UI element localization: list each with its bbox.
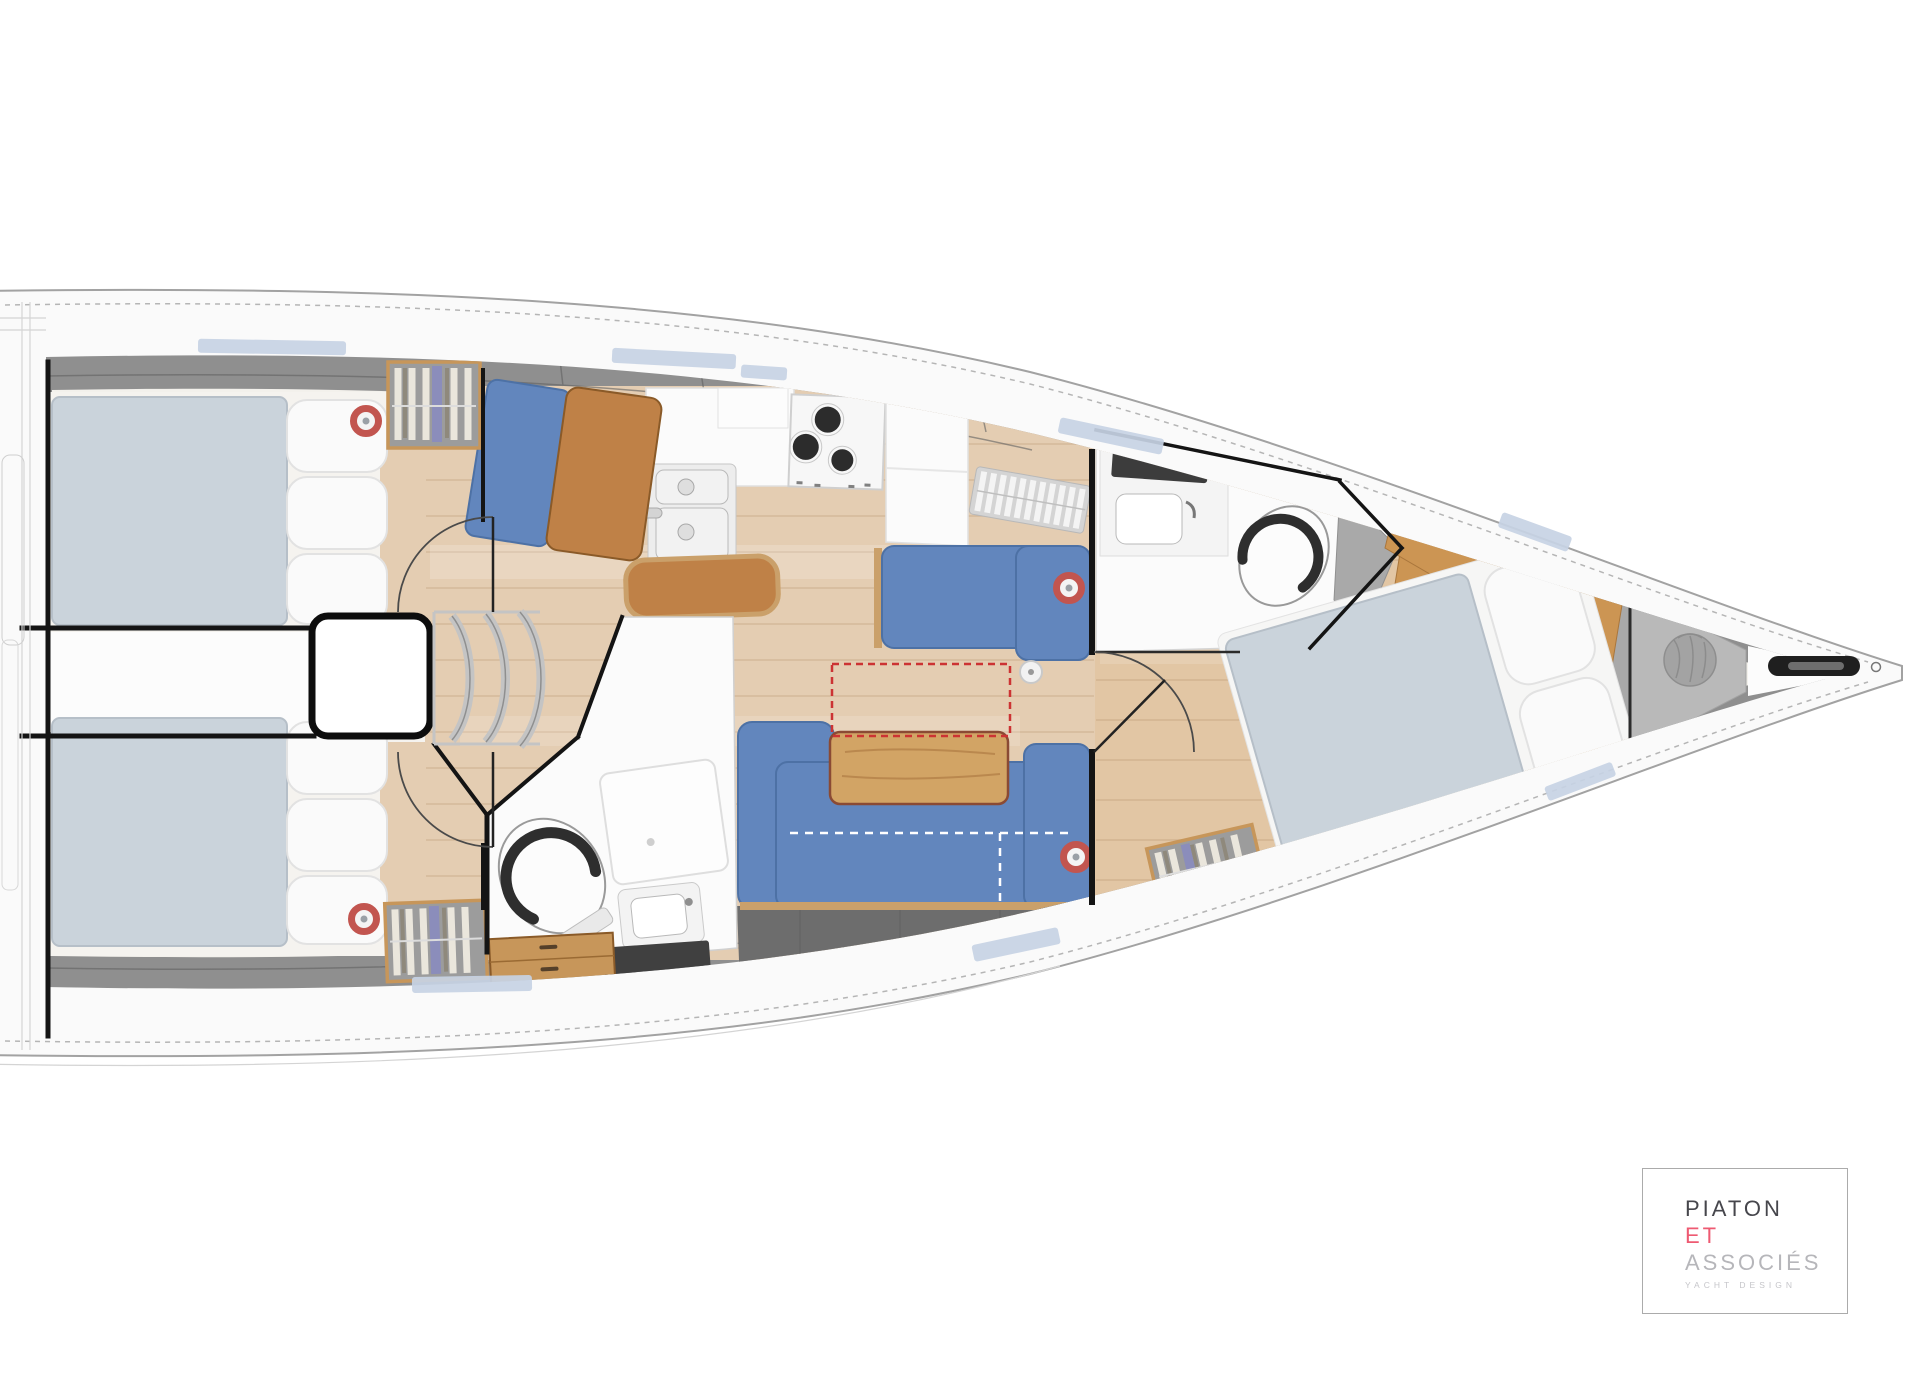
hull-window-6 bbox=[412, 975, 532, 993]
sink-drain-2 bbox=[678, 524, 694, 540]
aft-wardrobe-port bbox=[388, 362, 480, 448]
shower-pan-aft bbox=[599, 758, 729, 885]
speaker-salon-upper-center bbox=[1066, 585, 1073, 592]
galley-locker bbox=[718, 388, 788, 428]
hull-window-1 bbox=[198, 339, 346, 356]
sink-drain-1 bbox=[678, 479, 694, 495]
speaker-aft-port-center bbox=[363, 418, 370, 425]
aft-wardrobe-starboard bbox=[385, 900, 488, 981]
lower-sofa-trim bbox=[740, 902, 1092, 910]
aft-head-shower bbox=[599, 758, 729, 885]
salon-table bbox=[830, 732, 1008, 804]
stove-group bbox=[788, 394, 885, 489]
anchor-roller-slot bbox=[1788, 662, 1844, 670]
pillow-aft-stb-2 bbox=[287, 799, 387, 871]
speaker-aft-stb-center bbox=[361, 916, 368, 923]
aft-cabin-starboard-floor bbox=[380, 742, 490, 904]
aft-head-sink bbox=[617, 882, 705, 950]
basin-aft bbox=[630, 893, 688, 938]
nav-bench bbox=[625, 555, 779, 618]
speaker-salon-lower-center bbox=[1073, 854, 1080, 861]
wardrobe-port-clothes-purple bbox=[432, 366, 442, 442]
companionway-engine-box bbox=[312, 616, 430, 736]
basin-fwd bbox=[1116, 494, 1182, 544]
yacht-floor-plan bbox=[0, 0, 1920, 1375]
mattress-aft-starboard bbox=[52, 718, 287, 946]
sail-bag bbox=[1664, 634, 1716, 686]
designer-logo: PIATON ET ASSOCIÉS YACHT DESIGN bbox=[1642, 1168, 1848, 1314]
pillow-aft-port-2 bbox=[287, 477, 387, 549]
logo-tagline: YACHT DESIGN bbox=[1685, 1280, 1847, 1290]
logo-name-piaton: PIATON bbox=[1685, 1195, 1847, 1222]
upper-sofa-trim bbox=[874, 548, 882, 648]
yacht-interior-plan-canvas: PIATON ET ASSOCIÉS YACHT DESIGN bbox=[0, 0, 1920, 1375]
table-pedestal-dot bbox=[1028, 669, 1034, 675]
logo-name-associes: ASSOCIÉS bbox=[1685, 1249, 1847, 1276]
lower-sofa-right-arm bbox=[1024, 744, 1090, 908]
mattress-aft-port bbox=[52, 397, 287, 625]
logo-name-et: ET bbox=[1685, 1222, 1847, 1249]
upper-sofa-arm bbox=[1016, 546, 1090, 660]
